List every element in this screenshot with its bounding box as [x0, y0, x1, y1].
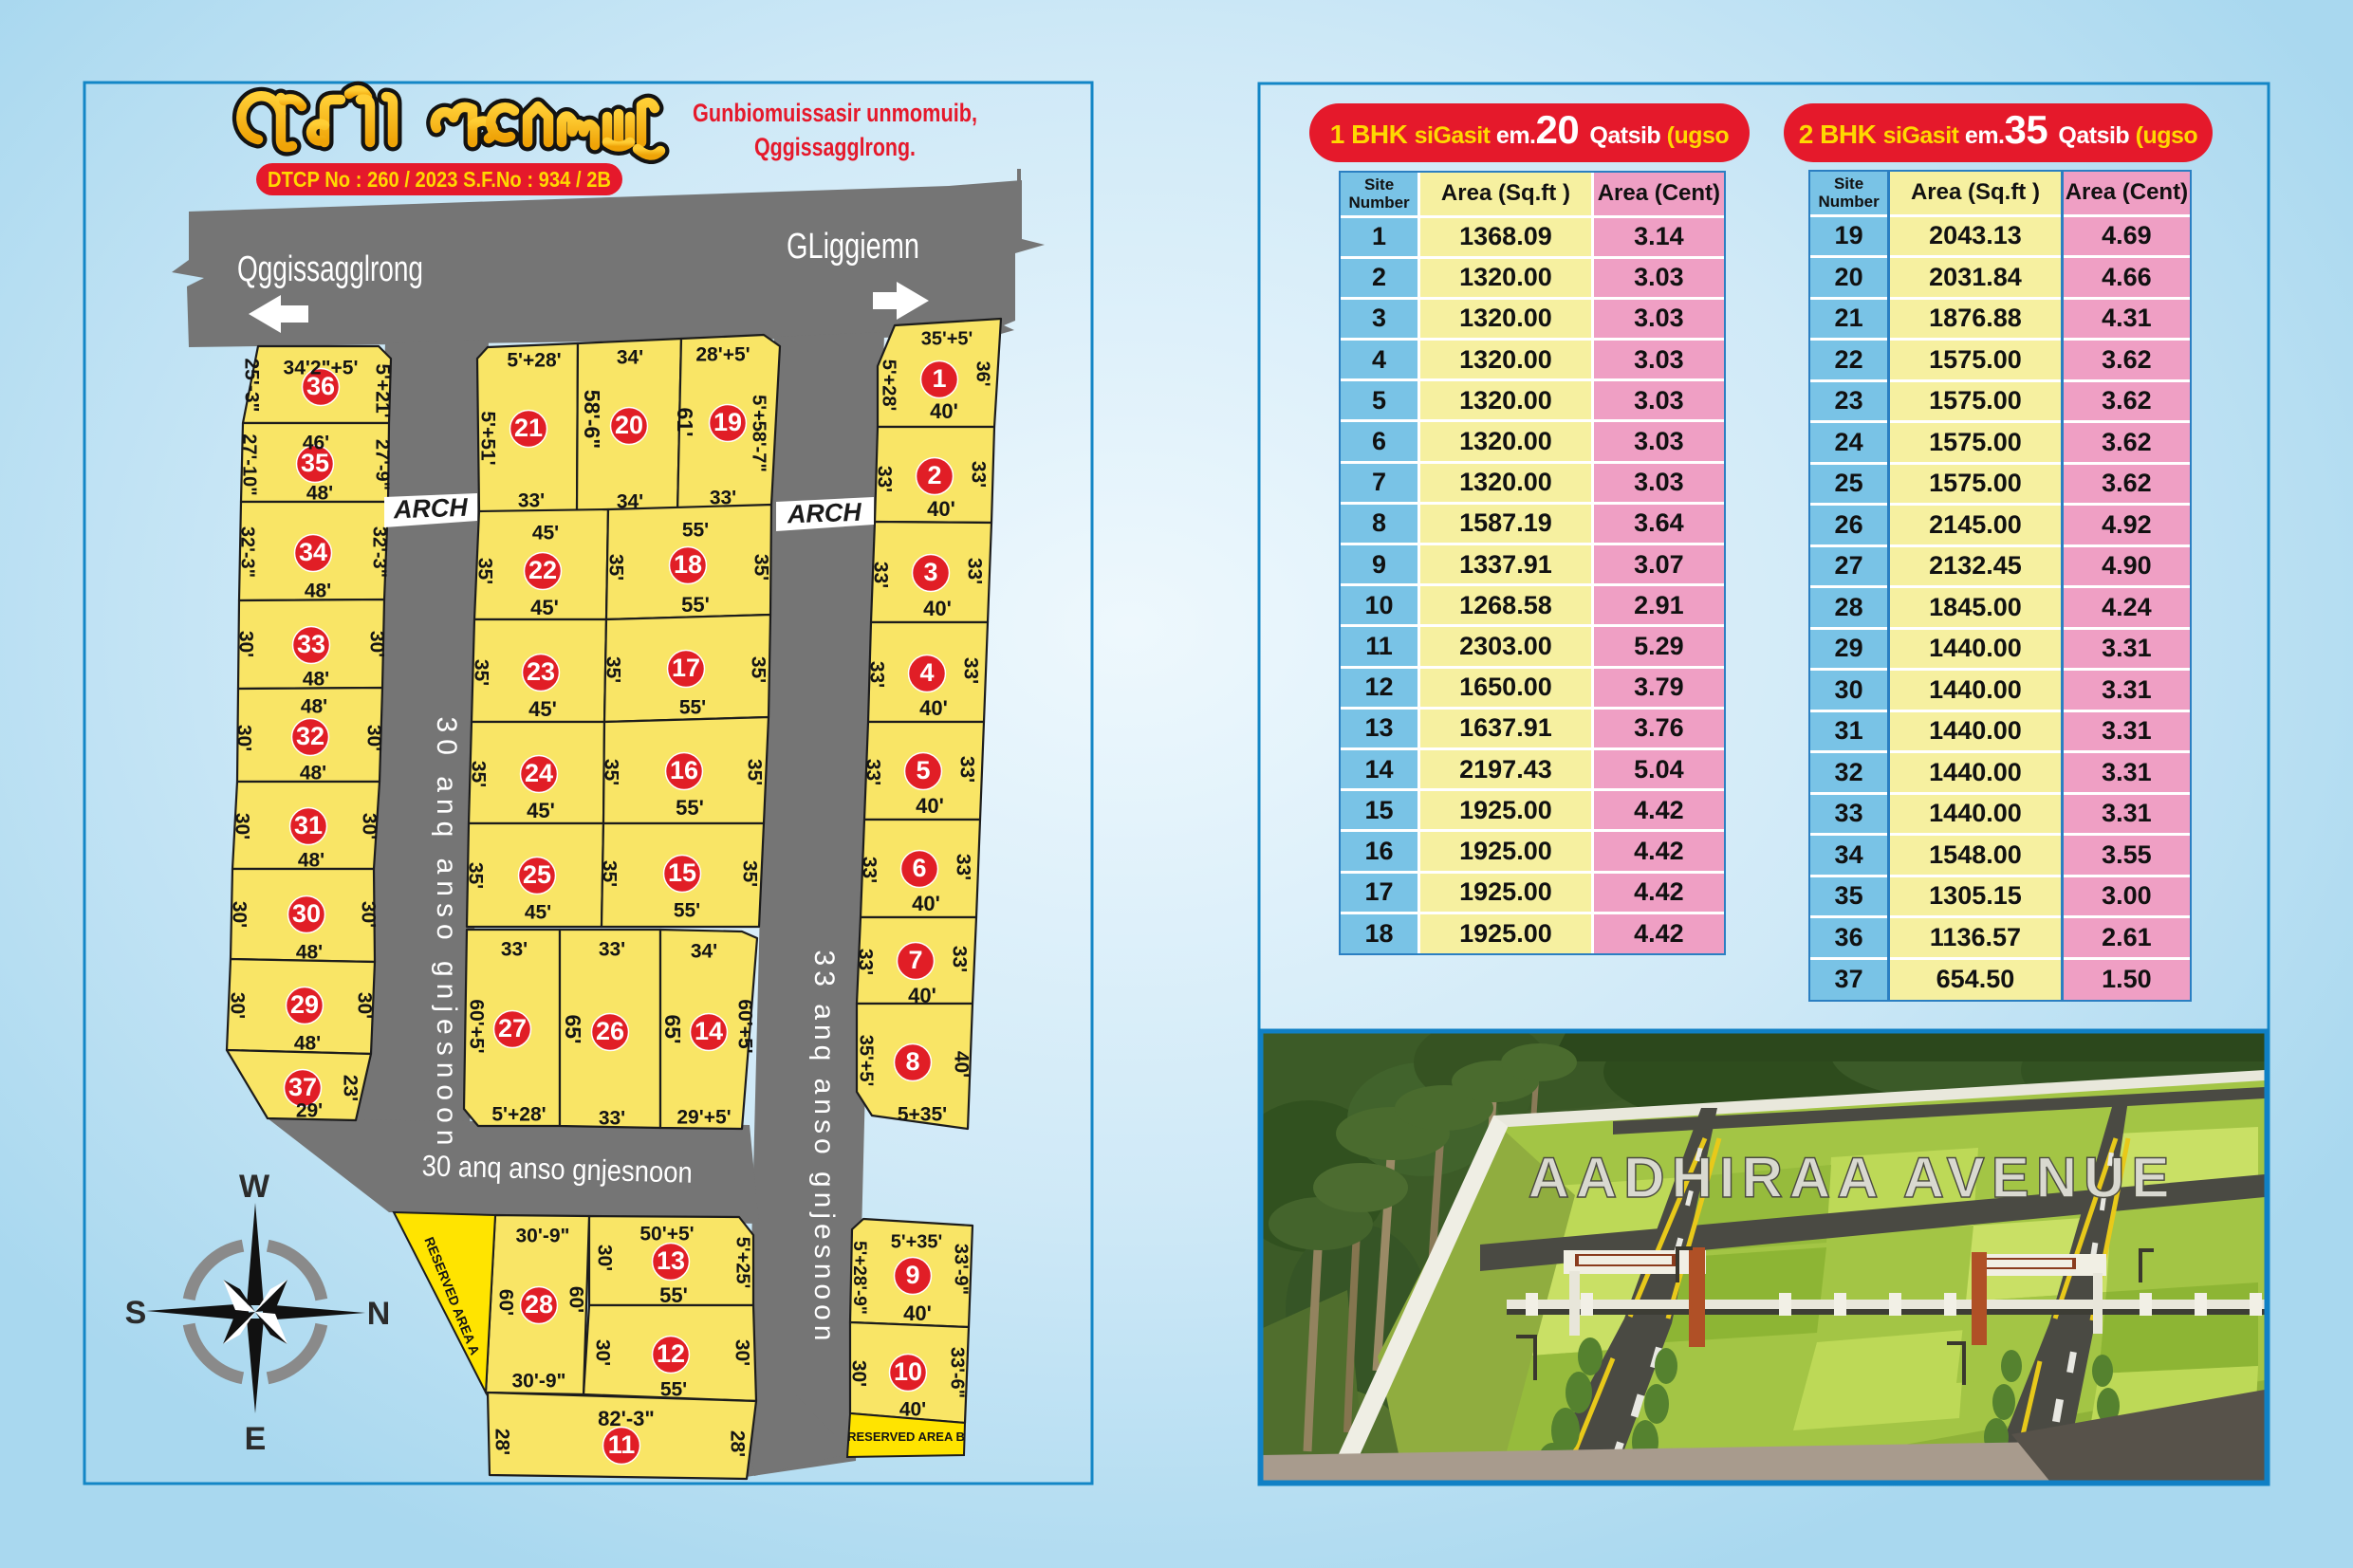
- svg-text:25: 25: [523, 860, 551, 889]
- svg-text:30'-9": 30'-9": [516, 1226, 570, 1247]
- svg-text:35': 35': [467, 761, 489, 787]
- svg-text:33'-9": 33'-9": [951, 1244, 972, 1295]
- svg-text:5+35': 5+35': [898, 1104, 947, 1126]
- svg-text:24: 24: [525, 759, 553, 787]
- svg-text:26: 26: [596, 1017, 624, 1045]
- svg-text:55': 55': [679, 697, 706, 719]
- svg-text:30': 30': [362, 725, 384, 751]
- svg-text:33': 33': [952, 854, 973, 880]
- svg-text:33': 33': [518, 490, 545, 512]
- svg-text:N: N: [367, 1296, 391, 1332]
- svg-text:35': 35': [747, 656, 769, 683]
- svg-text:30: 30: [292, 899, 321, 928]
- svg-text:35': 35': [464, 862, 486, 889]
- svg-text:1: 1: [932, 364, 946, 393]
- svg-text:23: 23: [527, 657, 555, 686]
- svg-text:55': 55': [674, 900, 700, 922]
- svg-text:S: S: [125, 1295, 147, 1331]
- svg-text:45': 45': [530, 596, 559, 619]
- svg-text:33': 33': [948, 946, 970, 972]
- svg-text:48': 48': [305, 581, 331, 602]
- svg-text:40': 40': [912, 892, 940, 915]
- svg-text:4: 4: [919, 658, 934, 687]
- svg-text:AADHIRAA AVENUE: AADHIRAA AVENUE: [1529, 1146, 2177, 1209]
- svg-text:35': 35': [598, 860, 620, 887]
- svg-text:35': 35': [470, 659, 491, 686]
- svg-text:Qggissagglrong: Qggissagglrong: [237, 249, 423, 289]
- svg-text:33 anq anso gnjesnoon: 33 anq anso gnjesnoon: [808, 950, 840, 1346]
- svg-text:35': 35': [738, 860, 760, 887]
- svg-text:27: 27: [498, 1014, 527, 1042]
- svg-text:40': 40': [927, 497, 955, 521]
- svg-text:55': 55': [676, 796, 704, 820]
- svg-text:33': 33': [963, 558, 985, 584]
- svg-text:30'-9": 30'-9": [512, 1371, 566, 1393]
- svg-text:ARCH: ARCH: [786, 498, 862, 529]
- svg-text:18: 18: [674, 550, 702, 579]
- svg-text:19: 19: [713, 408, 742, 436]
- svg-text:50'+5': 50'+5': [639, 1224, 694, 1245]
- svg-text:5'+28': 5'+28': [507, 350, 561, 372]
- svg-text:27'-9": 27'-9": [372, 439, 393, 490]
- svg-text:7: 7: [908, 946, 922, 974]
- svg-text:48': 48': [303, 669, 329, 691]
- svg-text:30 anq anso gnjesnoon: 30 anq anso gnjesnoon: [431, 717, 462, 1153]
- svg-text:40': 40': [930, 399, 958, 423]
- svg-text:40': 40': [919, 696, 948, 720]
- svg-text:33': 33': [599, 1108, 625, 1130]
- svg-text:34': 34': [691, 941, 717, 963]
- svg-text:30': 30': [731, 1339, 752, 1366]
- svg-text:5'+21': 5'+21': [371, 363, 393, 417]
- svg-text:33': 33': [959, 657, 981, 684]
- svg-text:55': 55': [682, 520, 709, 542]
- svg-text:33': 33': [955, 756, 977, 783]
- svg-text:14: 14: [695, 1017, 723, 1045]
- svg-text:35': 35': [743, 759, 765, 785]
- svg-text:48': 48': [301, 696, 327, 718]
- svg-text:33': 33': [865, 661, 887, 688]
- svg-text:5'+28': 5'+28': [879, 360, 899, 412]
- svg-text:34': 34': [617, 347, 643, 369]
- svg-text:33: 33: [297, 630, 325, 658]
- svg-text:5'+58'-7": 5'+58'-7": [749, 395, 769, 472]
- svg-text:35': 35': [600, 759, 621, 785]
- svg-text:60'+5': 60'+5': [465, 999, 487, 1053]
- svg-text:3: 3: [923, 558, 937, 586]
- svg-text:34'2"+5': 34'2"+5': [284, 358, 359, 379]
- svg-text:29': 29': [296, 1100, 323, 1122]
- svg-text:60'+5': 60'+5': [733, 999, 755, 1053]
- svg-text:5'+25': 5'+25': [732, 1237, 753, 1289]
- svg-text:30': 30': [593, 1245, 615, 1271]
- svg-text:9: 9: [905, 1261, 919, 1289]
- svg-text:33': 33': [873, 466, 895, 492]
- svg-text:28: 28: [525, 1290, 553, 1319]
- svg-text:33': 33': [854, 949, 876, 975]
- svg-text:32'-3": 32'-3": [369, 526, 390, 578]
- svg-text:32'-3": 32'-3": [237, 526, 258, 578]
- svg-text:35'+5': 35'+5': [921, 328, 973, 349]
- svg-text:12: 12: [657, 1339, 685, 1368]
- svg-text:31: 31: [294, 811, 323, 839]
- svg-text:13: 13: [657, 1246, 685, 1275]
- svg-text:60': 60': [494, 1289, 516, 1316]
- svg-text:28': 28': [491, 1429, 512, 1455]
- svg-text:30': 30': [353, 992, 375, 1019]
- svg-text:6: 6: [912, 854, 926, 882]
- svg-text:23': 23': [339, 1075, 361, 1101]
- svg-text:33': 33': [869, 562, 891, 588]
- svg-text:65': 65': [561, 1014, 585, 1043]
- svg-text:33': 33': [599, 939, 625, 961]
- svg-text:60': 60': [565, 1286, 586, 1313]
- svg-text:33': 33': [967, 461, 989, 488]
- svg-text:8: 8: [905, 1047, 919, 1076]
- svg-text:33'-6": 33'-6": [947, 1347, 968, 1398]
- svg-text:61': 61': [673, 407, 697, 436]
- svg-text:40': 40': [903, 1301, 932, 1325]
- svg-text:40': 40': [923, 597, 952, 620]
- svg-text:30': 30': [365, 631, 387, 657]
- svg-text:5'+51': 5'+51': [476, 411, 498, 465]
- svg-text:20: 20: [615, 411, 643, 439]
- svg-text:30': 30': [226, 992, 248, 1019]
- svg-text:5: 5: [916, 756, 930, 784]
- svg-text:46': 46': [303, 433, 329, 454]
- svg-text:21: 21: [514, 414, 543, 442]
- svg-text:35'+5': 35'+5': [856, 1035, 877, 1087]
- svg-text:32: 32: [296, 722, 324, 750]
- svg-text:28': 28': [726, 1430, 748, 1457]
- svg-text:45': 45': [525, 902, 551, 924]
- svg-text:30': 30': [358, 813, 380, 839]
- svg-text:W: W: [239, 1169, 270, 1205]
- svg-text:45': 45': [532, 523, 559, 544]
- svg-text:29: 29: [290, 990, 319, 1019]
- svg-text:40': 40': [950, 1051, 972, 1078]
- svg-text:55': 55': [681, 593, 710, 617]
- svg-text:30': 30': [228, 901, 250, 928]
- svg-text:33': 33': [862, 759, 883, 785]
- svg-text:40': 40': [916, 794, 944, 818]
- svg-text:30': 30': [231, 813, 252, 839]
- svg-text:30': 30': [847, 1360, 869, 1387]
- svg-text:5'+28': 5'+28': [491, 1104, 546, 1126]
- svg-text:29'+5': 29'+5': [676, 1107, 731, 1129]
- svg-text:36': 36': [973, 360, 993, 386]
- svg-text:45': 45': [527, 799, 555, 822]
- svg-text:82'-3": 82'-3": [598, 1407, 655, 1430]
- svg-text:5'+35': 5'+35': [891, 1231, 943, 1252]
- svg-text:65': 65': [660, 1014, 685, 1043]
- svg-text:30': 30': [357, 901, 379, 928]
- svg-text:55': 55': [659, 1283, 688, 1307]
- svg-text:35': 35': [602, 656, 623, 683]
- svg-text:ARCH: ARCH: [392, 493, 468, 525]
- svg-text:25'-3": 25'-3": [240, 359, 262, 413]
- svg-text:35': 35': [750, 554, 771, 581]
- svg-text:RESERVED AREA B: RESERVED AREA B: [847, 1430, 965, 1444]
- svg-text:DTCP No : 260 / 2023 S.F.No :: DTCP No : 260 / 2023 S.F.No : 934 / 2B: [268, 167, 611, 192]
- svg-text:10: 10: [894, 1357, 922, 1386]
- svg-text:Qggissagglrong.: Qggissagglrong.: [754, 133, 916, 161]
- svg-text:27'-10": 27'-10": [239, 434, 260, 495]
- svg-text:5'+28'-9": 5'+28'-9": [849, 1241, 869, 1315]
- svg-text:30': 30': [234, 631, 256, 657]
- svg-text:GLiggiemn: GLiggiemn: [787, 227, 919, 267]
- svg-text:30': 30': [232, 725, 254, 751]
- svg-text:15: 15: [668, 858, 696, 887]
- svg-text:11: 11: [608, 1430, 636, 1459]
- svg-text:35': 35': [604, 554, 626, 581]
- svg-text:30 anq anso gnjesnoon: 30 anq anso gnjesnoon: [421, 1149, 693, 1189]
- svg-text:35': 35': [473, 558, 495, 584]
- svg-text:28'+5': 28'+5': [695, 344, 750, 366]
- svg-text:2: 2: [927, 461, 941, 489]
- svg-text:Gunbiomuissasir unmomuib,: Gunbiomuissasir unmomuib,: [693, 99, 977, 127]
- svg-text:E: E: [245, 1421, 267, 1457]
- svg-text:30': 30': [591, 1339, 613, 1366]
- svg-text:37: 37: [288, 1073, 317, 1101]
- svg-text:17: 17: [672, 654, 700, 682]
- svg-text:34: 34: [299, 538, 327, 566]
- svg-text:33': 33': [501, 939, 528, 961]
- svg-text:16: 16: [670, 756, 698, 784]
- svg-text:22: 22: [528, 556, 557, 584]
- svg-text:45': 45': [528, 697, 557, 721]
- svg-text:33': 33': [858, 857, 880, 883]
- svg-text:58'-6": 58'-6": [580, 390, 604, 449]
